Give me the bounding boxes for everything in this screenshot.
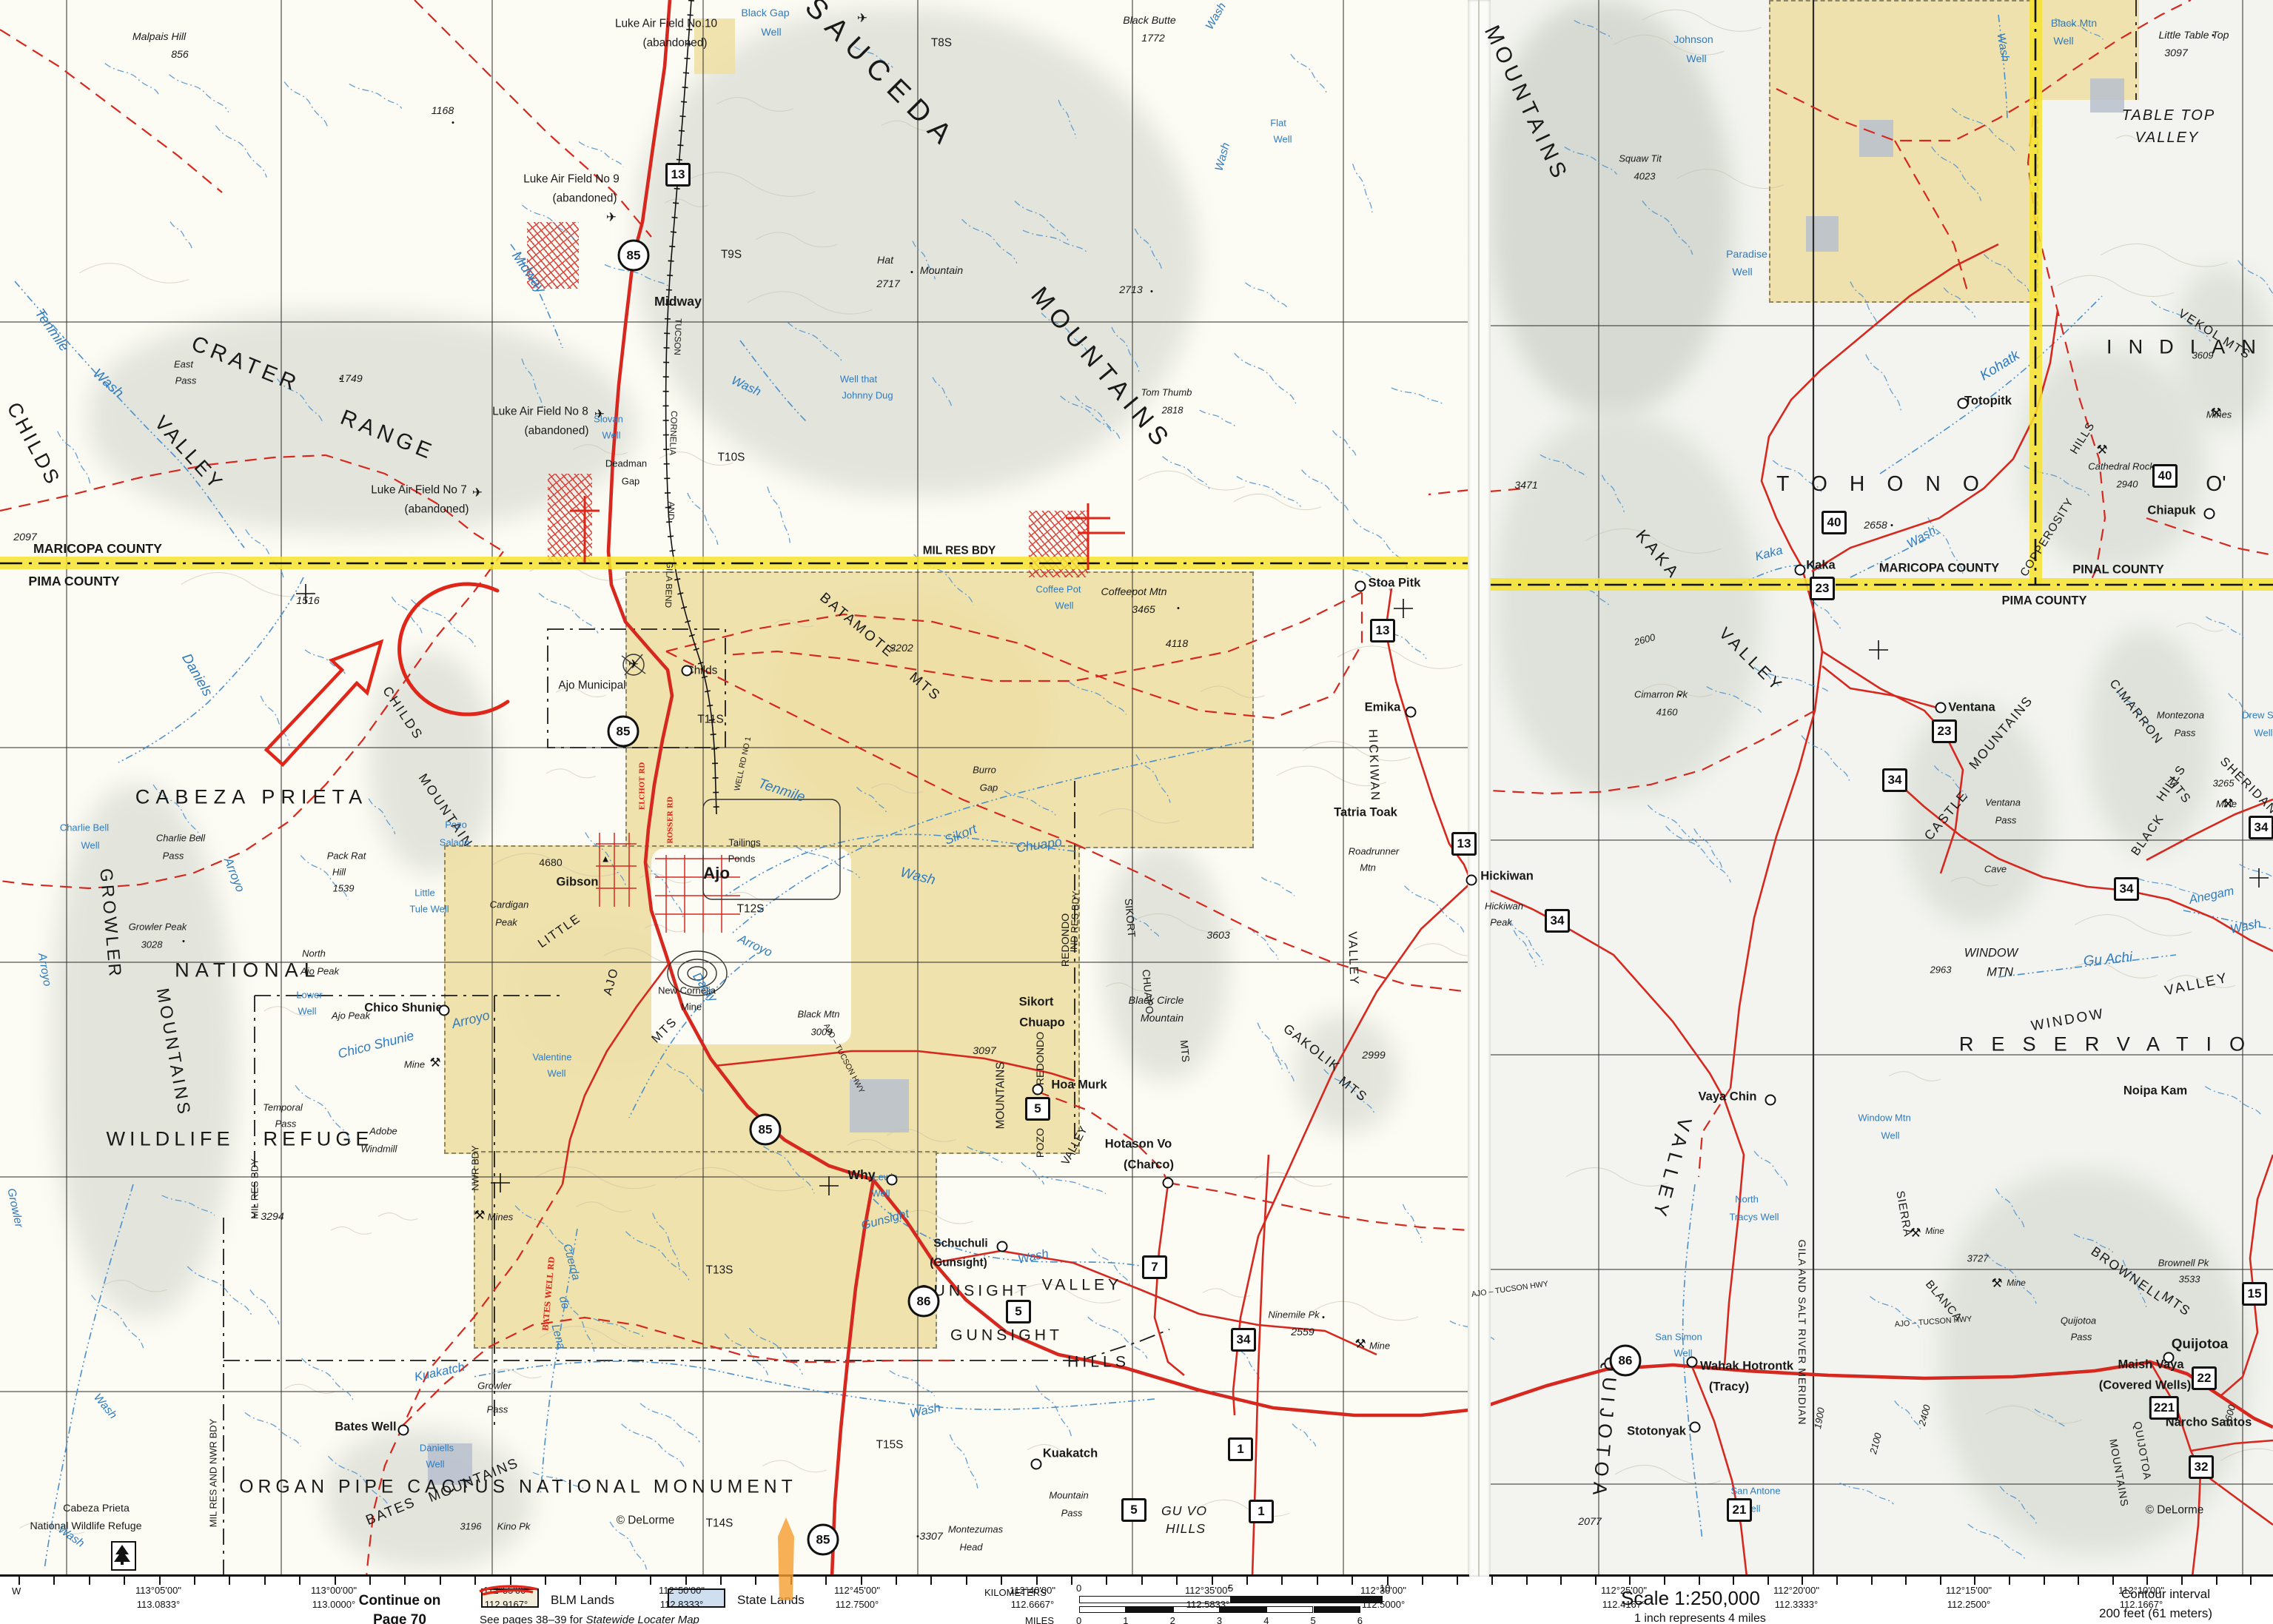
orange-highlighter-mark	[778, 1517, 794, 1600]
atlas-scan: Malpais Hill8561168Luke Air Field No.10(…	[0, 0, 2273, 1624]
red-marker-arrow	[266, 642, 381, 765]
red-underline-coordinate	[480, 1586, 537, 1594]
red-circle-mp325	[400, 584, 508, 714]
hand-annotations	[0, 0, 2273, 1624]
red-pen-marks	[570, 496, 1125, 570]
